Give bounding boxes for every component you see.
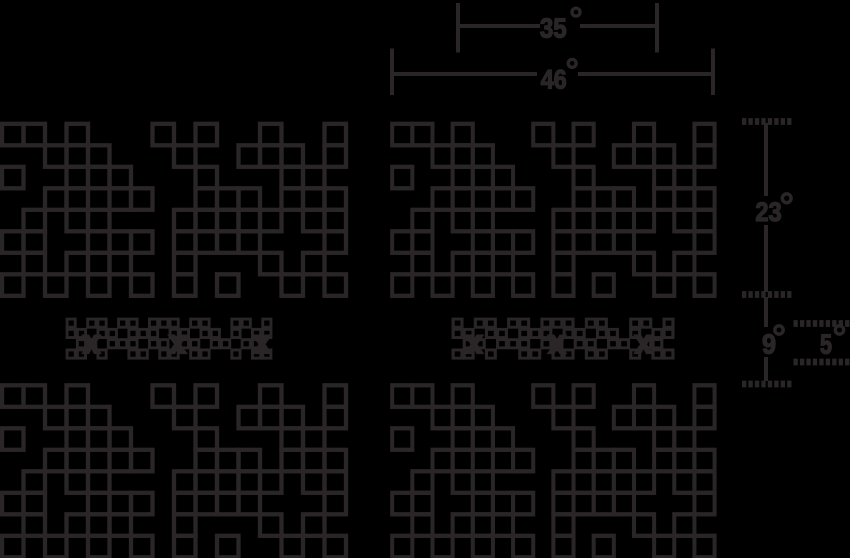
svg-text:23: 23 — [755, 198, 781, 228]
svg-text:9: 9 — [762, 329, 776, 360]
svg-text:46: 46 — [541, 65, 567, 95]
svg-text:5: 5 — [820, 330, 832, 360]
svg-text:35: 35 — [540, 14, 567, 44]
